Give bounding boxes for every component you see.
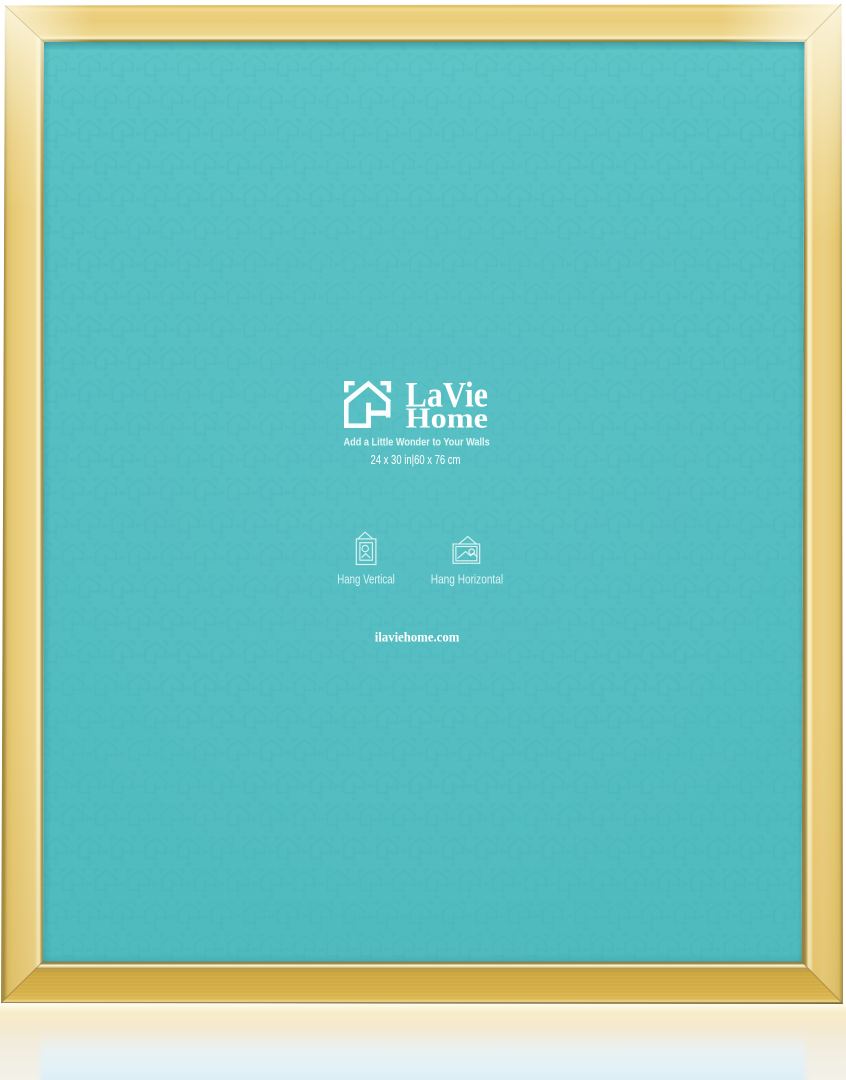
svg-text:Hang Horizontal: Hang Horizontal [431, 572, 503, 587]
svg-text:24 x 30 in|60 x 76 cm: 24 x 30 in|60 x 76 cm [371, 454, 461, 468]
svg-text:Hang Vertical: Hang Vertical [337, 573, 394, 587]
svg-text:ilaviehome.com: ilaviehome.com [375, 629, 460, 645]
svg-text:Home: Home [406, 402, 488, 434]
svg-text:Add a Little Wonder to Your Wa: Add a Little Wonder to Your Walls [344, 437, 491, 449]
